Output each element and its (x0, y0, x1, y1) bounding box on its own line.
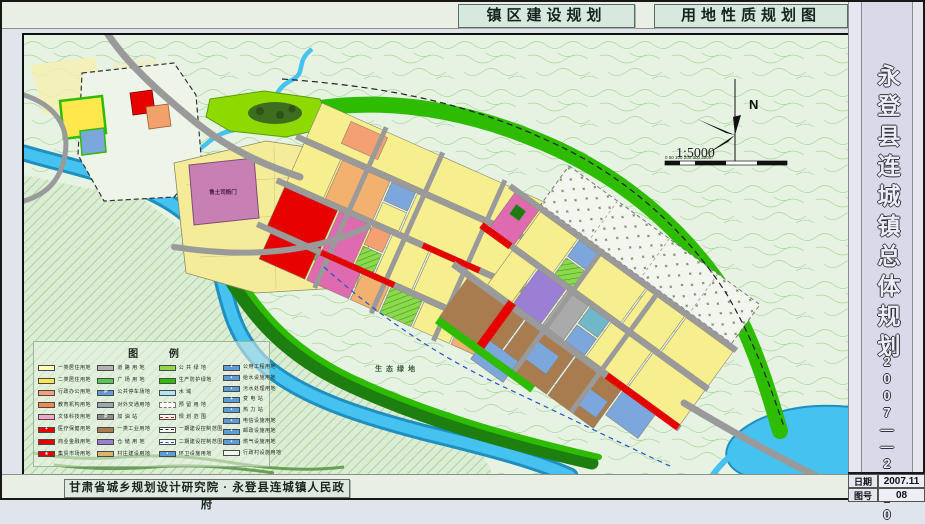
legend-swatch (97, 378, 114, 384)
legend-item: +变 电 站 (223, 395, 269, 404)
legend-swatch (97, 451, 114, 457)
legend-swatch (97, 365, 114, 371)
legend-swatch (159, 414, 176, 420)
legend-item: 一类工业用地 (97, 424, 158, 435)
legend-label: 公共停车场地 (117, 390, 150, 395)
legend-item: P加 油 站 (97, 412, 158, 423)
date-label: 日期 (848, 474, 878, 488)
legend-item: P公共停车场地 (97, 388, 158, 399)
legend-item: •污水处理用地 (223, 384, 269, 393)
legend-item: •公用工程用地 (223, 363, 269, 372)
legend-label: 道 路 用 地 (117, 366, 145, 371)
legend-swatch: ★ (38, 451, 55, 457)
legend-swatch (159, 439, 176, 445)
legend-item: 商业金融用地 (38, 437, 97, 448)
legend-label: 教育机构用地 (58, 403, 91, 408)
legend-label: 二期建设控制范围 (179, 440, 223, 445)
legend-label: 二类居住用地 (58, 378, 91, 383)
legend-label: 公用工程用地 (243, 365, 276, 370)
legend-swatch (38, 402, 55, 408)
legend-label: 医疗保健用地 (58, 427, 91, 432)
legend-label: 仓 储 用 地 (117, 440, 145, 445)
legend-item: 仓 储 用 地 (97, 437, 158, 448)
legend-swatch (159, 390, 176, 396)
legend-swatch: • (223, 439, 240, 445)
legend-item: 文体科技用地 (38, 412, 97, 423)
legend-column-1: 一类居住用地二类居住用地行政办公用地教育机构用地文体科技用地+医疗保健用地商业金… (38, 363, 97, 461)
legend-item: 生产防护绿地 (159, 375, 223, 386)
legend-item: •邮政设施用地 (223, 427, 269, 436)
legend-label: 一期建设控制范围 (179, 427, 223, 432)
legend-label: 一类居住用地 (58, 366, 91, 371)
legend-item: 行政村设施用地 (223, 449, 269, 458)
legend-swatch: • (223, 386, 240, 392)
legend-label: 污水处理用地 (243, 387, 276, 392)
legend-swatch (159, 378, 176, 384)
legend-swatch (38, 439, 55, 445)
legend-swatch (38, 378, 55, 384)
bottom-strip: 甘肃省城乡规划设计研究院 · 永登县连城镇人民政府 (2, 474, 848, 499)
credit-box: 甘肃省城乡规划设计研究院 · 永登县连城镇人民政府 (64, 479, 350, 498)
legend-swatch (159, 402, 176, 408)
legend-label: 水 域 (179, 390, 192, 395)
legend-label: 热 力 站 (243, 408, 263, 413)
legend-label: 集贸市场用地 (58, 452, 91, 457)
legend-item: 村庄建设用地 (97, 449, 158, 460)
legend-swatch: • (159, 451, 176, 457)
legend-swatch (97, 439, 114, 445)
legend-item: +医疗保健用地 (38, 424, 97, 435)
legend-swatch: + (223, 397, 240, 403)
legend-label: 电信设施用地 (243, 419, 276, 424)
legend: 图 例 一类居住用地二类居住用地行政办公用地教育机构用地文体科技用地+医疗保健用… (33, 341, 270, 467)
landmark-label: 鲁土司衙门 (209, 188, 237, 196)
legend-column-3: 公 共 绿 地生产防护绿地水 域预 留 用 地规 划 范 围一期建设控制范围二期… (159, 363, 223, 461)
legend-swatch (97, 427, 114, 433)
legend-label: 商业金融用地 (58, 440, 91, 445)
legend-swatch (38, 414, 55, 420)
legend-item: •给水设施用地 (223, 374, 269, 383)
legend-item: •燃气设施用地 (223, 438, 269, 447)
legend-swatch (223, 450, 240, 456)
sidebar-title-band: 永登县连城镇总体规划 2007——2020 (861, 2, 913, 472)
page-title-right: 用地性质规划图 (654, 4, 848, 28)
legend-item: 公 共 绿 地 (159, 363, 223, 374)
legend-label: 邮政设施用地 (243, 429, 276, 434)
legend-label: 规 划 范 围 (179, 415, 207, 420)
legend-label: 环卫设施用地 (179, 452, 212, 457)
legend-column-4: •公用工程用地•给水设施用地•污水处理用地+变 电 站•热 力 站•电信设施用地… (223, 363, 269, 461)
legend-swatch: • (223, 365, 240, 371)
legend-swatch: P (97, 414, 114, 420)
legend-item: 道 路 用 地 (97, 363, 158, 374)
legend-item: 二类居住用地 (38, 375, 97, 386)
legend-item: •电信设施用地 (223, 416, 269, 425)
legend-item: 预 留 用 地 (159, 400, 223, 411)
legend-swatch: • (223, 429, 240, 435)
legend-swatch: • (223, 375, 240, 381)
legend-label: 对外交通用地 (117, 403, 150, 408)
legend-swatch: P (97, 390, 114, 396)
legend-label: 变 电 站 (243, 397, 263, 402)
legend-label: 公 共 绿 地 (179, 366, 207, 371)
eco-label: 生态绿地 (375, 364, 419, 373)
legend-item: 对外交通用地 (97, 400, 158, 411)
legend-label: 一类工业用地 (117, 427, 150, 432)
legend-item: 规 划 范 围 (159, 412, 223, 423)
legend-item: 水 域 (159, 388, 223, 399)
legend-column-2: 道 路 用 地广 场 用 地P公共停车场地对外交通用地P加 油 站一类工业用地仓… (97, 363, 158, 461)
legend-item: 一类居住用地 (38, 363, 97, 374)
legend-swatch: + (38, 427, 55, 433)
legend-item: 教育机构用地 (38, 400, 97, 411)
date-value: 2007.11 (878, 474, 925, 488)
legend-label: 预 留 用 地 (179, 403, 207, 408)
legend-title: 图 例 (52, 345, 269, 360)
legend-swatch (159, 427, 176, 433)
legend-label: 给水设施用地 (243, 376, 276, 381)
sidebar: 永登县连城镇总体规划 2007——2020 (848, 2, 924, 472)
legend-swatch: • (223, 418, 240, 424)
legend-item: •热 力 站 (223, 406, 269, 415)
title-block-table: 日期 2007.11 图号 08 (848, 472, 925, 502)
legend-swatch (159, 365, 176, 371)
compass-n-label: N (749, 97, 758, 112)
legend-label: 村庄建设用地 (117, 452, 150, 457)
legend-item: ★集贸市场用地 (38, 449, 97, 460)
legend-label: 广 场 用 地 (117, 378, 145, 383)
legend-swatch (38, 390, 55, 396)
legend-swatch (97, 402, 114, 408)
legend-item: •环卫设施用地 (159, 449, 223, 460)
legend-item: 二期建设控制范围 (159, 437, 223, 448)
legend-item: 广 场 用 地 (97, 375, 158, 386)
legend-label: 燃气设施用地 (243, 440, 276, 445)
legend-swatch: • (223, 407, 240, 413)
scale-ticks: 0 50 100 200 300 400m (665, 155, 713, 160)
plan-title-vertical: 永登县连城镇总体规划 (870, 64, 904, 364)
legend-label: 文体科技用地 (58, 415, 91, 420)
legend-label: 行政村设施用地 (243, 451, 282, 456)
legend-label: 生产防护绿地 (179, 378, 212, 383)
legend-item: 一期建设控制范围 (159, 424, 223, 435)
page-title-left: 镇区建设规划 (458, 4, 635, 28)
legend-label: 加 油 站 (117, 415, 137, 420)
legend-item: 行政办公用地 (38, 388, 97, 399)
legend-label: 行政办公用地 (58, 390, 91, 395)
legend-swatch (38, 365, 55, 371)
